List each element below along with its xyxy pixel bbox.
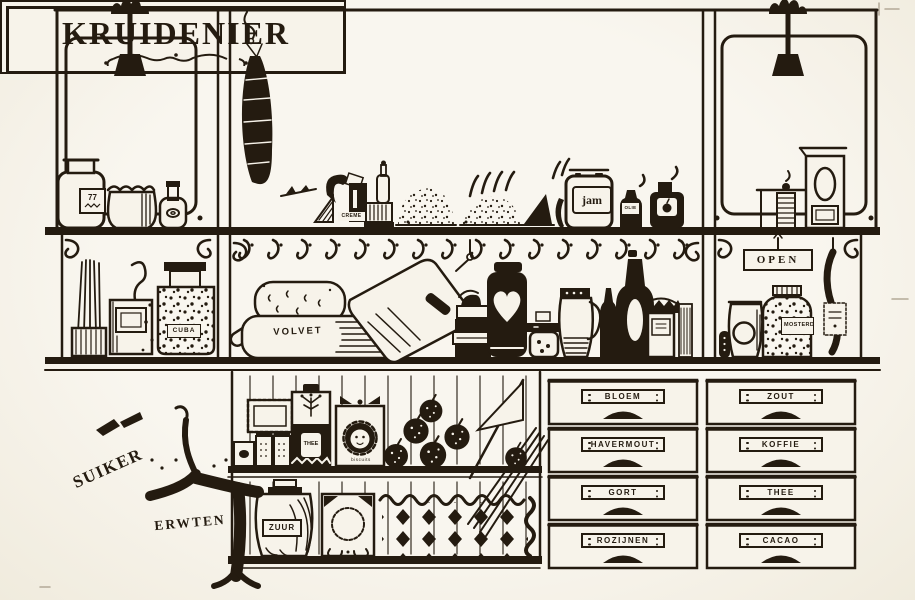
screw-icon xyxy=(746,394,749,397)
scoop-icon xyxy=(96,412,143,436)
jam-label: jam xyxy=(572,186,612,214)
screw-icon xyxy=(746,490,749,493)
drawer-label-zout: ZOUT xyxy=(739,389,823,404)
sunburst-box xyxy=(322,494,374,557)
drawer-label-gort: GORT xyxy=(581,485,665,500)
ink-drawing xyxy=(0,0,915,600)
screw-icon xyxy=(656,538,659,541)
jug xyxy=(559,288,600,357)
hanging-sausage xyxy=(242,12,272,184)
screw-icon xyxy=(746,442,749,445)
screw-icon xyxy=(656,394,659,397)
drawer-label-thee: THEE xyxy=(739,485,823,500)
circle-jar xyxy=(729,302,762,357)
mosterd-label: MOSTERD xyxy=(781,317,814,335)
drawer-label-koffie: KOFFIE xyxy=(739,437,823,452)
biscuit-box-label: biscuits xyxy=(340,456,382,464)
right-counter-goods xyxy=(757,148,846,228)
right-lamp-icon xyxy=(769,0,807,76)
covered-preserve-jar xyxy=(644,299,692,358)
jar-77-label: 77 xyxy=(79,188,106,214)
left-shelf-jars xyxy=(58,160,186,228)
screw-icon xyxy=(656,490,659,493)
zigzag-icon xyxy=(84,203,101,208)
screw-icon xyxy=(814,538,817,541)
open-sign-hanger xyxy=(774,233,782,250)
ornate-tin xyxy=(248,400,292,432)
screw-icon xyxy=(588,394,591,397)
cuba-label: CUBA xyxy=(167,324,201,338)
valance-trim xyxy=(239,240,688,258)
zuur-jar-label: ZUUR xyxy=(262,519,302,537)
heart-jar xyxy=(487,262,527,357)
creme-label: CREME xyxy=(338,212,365,221)
screw-icon xyxy=(588,538,591,541)
fruit-preserve-jar xyxy=(650,167,684,228)
drawer-label-bloem: BLOEM xyxy=(581,389,665,404)
drawer-label-rozijnen: ROZIJNEN xyxy=(581,533,665,548)
drawer-label-cacao: CACAO xyxy=(739,533,823,548)
sack-branch-silhouette xyxy=(150,407,258,586)
thee-canister-label: THEE xyxy=(300,432,322,458)
bread-loaves xyxy=(396,159,569,225)
screw-icon xyxy=(588,490,591,493)
hanging-sausage-right xyxy=(824,238,846,352)
quilted-wafer-tray xyxy=(380,496,534,557)
dotted-pot xyxy=(527,312,561,357)
framed-jar xyxy=(110,262,152,354)
screw-icon xyxy=(814,394,817,397)
screw-icon xyxy=(814,442,817,445)
grocer-illustration: KRUIDENIER OPEN 77 CREME jam OLIE CUBA V… xyxy=(0,0,915,600)
scroll-brackets xyxy=(66,240,858,260)
screw-icon xyxy=(814,490,817,493)
volvet-label: VOLVET xyxy=(268,325,328,339)
screw-icon xyxy=(746,538,749,541)
drawer-label-havermout: HAVERMOUT xyxy=(581,437,665,452)
olie-label: OLIE xyxy=(621,202,640,215)
open-sign: OPEN xyxy=(743,249,813,271)
small-box-and-packets xyxy=(234,431,290,466)
screw-icon xyxy=(656,442,659,445)
screw-icon xyxy=(588,442,591,445)
zuur-jar xyxy=(256,480,313,556)
spaghetti-pot xyxy=(72,260,106,356)
